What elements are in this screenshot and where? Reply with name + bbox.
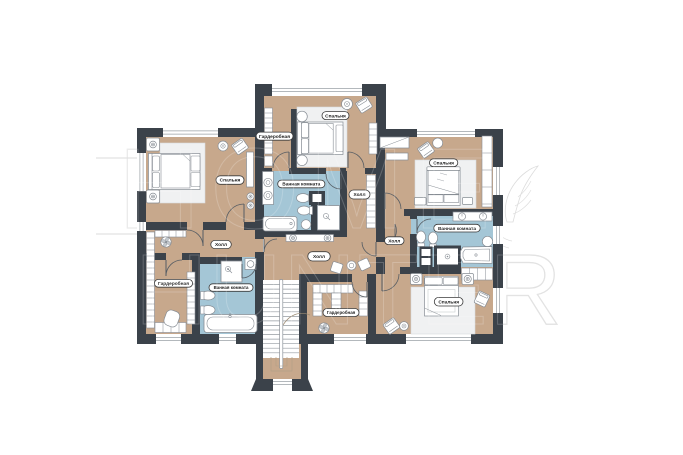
svg-text:Спальня: Спальня bbox=[325, 113, 346, 119]
svg-text:HUNTER: HUNTER bbox=[135, 234, 564, 346]
